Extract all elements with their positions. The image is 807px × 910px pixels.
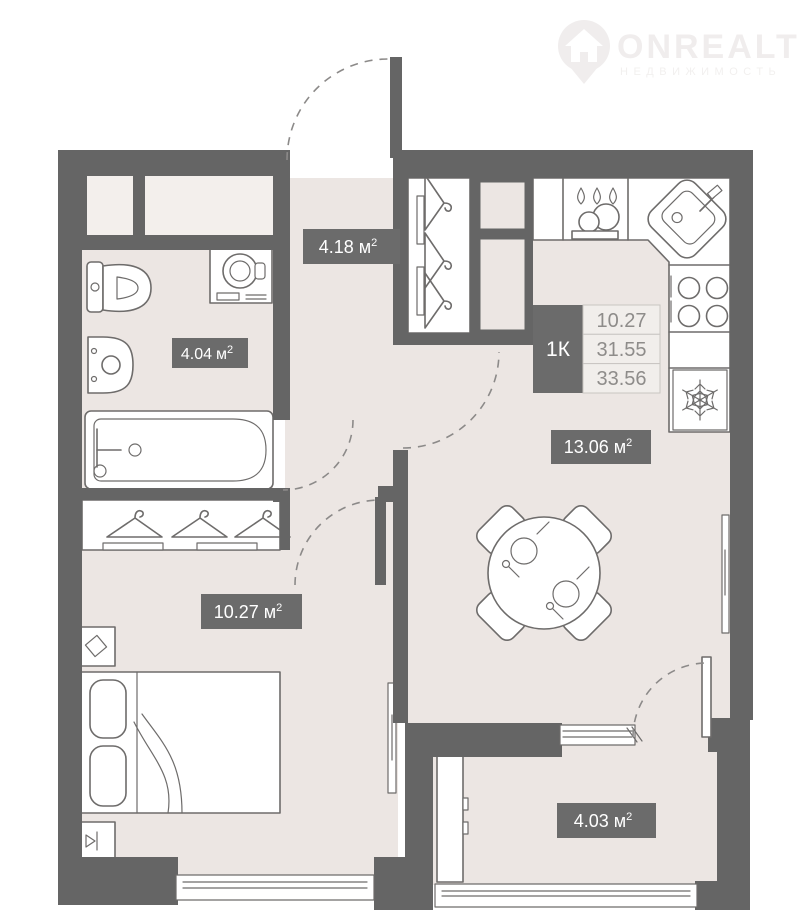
- washing-machine-icon: [210, 245, 272, 303]
- shaft-panel: [479, 238, 526, 331]
- logo-pin-tail: [570, 67, 598, 84]
- floor-plan-page: ONREALT НЕДВИЖИМОСТЬ: [0, 0, 807, 910]
- svg-text:13.06м2: 13.06м2: [564, 437, 633, 457]
- balcony-door-leaf: [702, 657, 711, 737]
- area-value: 4.03: [574, 811, 609, 831]
- entrance-door-leaf: [390, 57, 402, 158]
- area-living-room: 10.27: [596, 310, 646, 332]
- living-balcony-window: [560, 725, 642, 745]
- svg-text:4.03м2: 4.03м2: [574, 811, 633, 831]
- dining-set: [473, 502, 615, 644]
- wall-niche: [145, 176, 273, 235]
- room-area-badge-kitchen-living: 13.06м2: [551, 430, 651, 464]
- brand-tagline: НЕДВИЖИМОСТЬ: [620, 66, 781, 78]
- balcony-window: [435, 884, 697, 907]
- room-area-badge-hallway: 4.18м2: [303, 229, 400, 264]
- room-area-badge-balcony: 4.03м2: [557, 803, 656, 838]
- svg-text:10.27м2: 10.27м2: [214, 602, 283, 622]
- shaft-panel: [479, 181, 526, 230]
- area-total: 33.56: [596, 368, 646, 390]
- svg-text:4.18м2: 4.18м2: [319, 237, 378, 257]
- bathtub-icon: [85, 411, 273, 489]
- watermark-logo: ONREALT НЕДВИЖИМОСТЬ: [558, 20, 800, 84]
- nightstand-top: [78, 627, 115, 666]
- apartment-type: 1К: [546, 338, 571, 361]
- bedroom-window: [176, 875, 374, 900]
- bedroom-door-leaf: [375, 497, 386, 585]
- room-area-badge-bedroom: 10.27м2: [201, 594, 302, 629]
- bed-icon: [80, 672, 280, 813]
- floor-plan-svg: ONREALT НЕДВИЖИМОСТЬ: [0, 0, 807, 910]
- apartment-info-block: 1К 10.27 31.55 33.56: [533, 305, 660, 393]
- area-value: 13.06: [564, 437, 609, 457]
- area-value: 10.27: [214, 602, 259, 622]
- room-area-badge-bathroom: 4.04м2: [172, 338, 248, 368]
- toilet-icon: [87, 262, 151, 312]
- area-value: 4.18: [319, 237, 354, 257]
- svg-text:4.04м2: 4.04м2: [181, 344, 233, 363]
- area-value: 4.04: [181, 346, 212, 363]
- entrance-door-arc: [287, 59, 389, 160]
- bathroom-sink-icon: [88, 337, 133, 393]
- area-apartment: 31.55: [596, 339, 646, 361]
- brand-name: ONREALT: [617, 28, 800, 66]
- nightstand-bottom: [78, 822, 115, 860]
- balcony-cabinet: [437, 756, 468, 882]
- wall-niche: [87, 176, 133, 235]
